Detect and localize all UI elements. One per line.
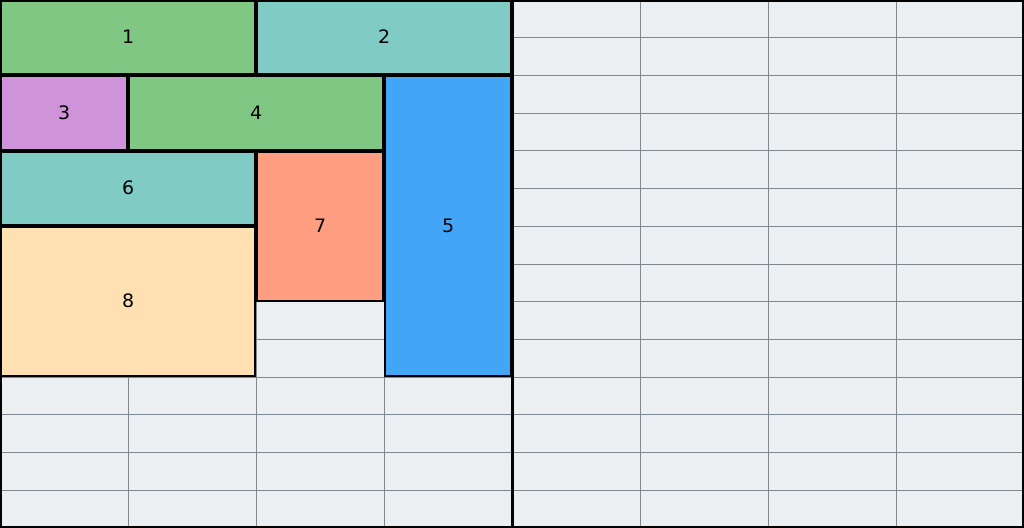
grid-cell-r12-c1: [128, 453, 256, 491]
grid-cell-r10-c3: [384, 377, 512, 415]
grid-cell-r5-c5: [640, 189, 768, 227]
packing-board: 12345678: [0, 0, 1024, 528]
grid-cell-r3-c5: [640, 113, 768, 151]
grid-cell-r3-c4: [512, 113, 640, 151]
block-8[interactable]: 8: [0, 226, 256, 377]
block-label: 5: [442, 217, 454, 236]
grid-cell-r2-c7: [896, 75, 1024, 113]
grid-cell-r8-c2: [256, 302, 384, 340]
grid-cell-r4-c4: [512, 151, 640, 189]
grid-cell-r2-c4: [512, 75, 640, 113]
grid-cell-r11-c5: [640, 415, 768, 453]
block-3[interactable]: 3: [0, 75, 128, 150]
block-label: 6: [122, 179, 134, 198]
grid-cell-r3-c6: [768, 113, 896, 151]
grid-cell-r0-c6: [768, 0, 896, 38]
grid-cell-r12-c0: [0, 453, 128, 491]
grid-cell-r10-c5: [640, 377, 768, 415]
block-label: 3: [58, 104, 70, 123]
grid-cell-r12-c3: [384, 453, 512, 491]
grid-cell-r13-c0: [0, 490, 128, 528]
block-7[interactable]: 7: [256, 151, 384, 302]
grid-cell-r10-c1: [128, 377, 256, 415]
block-6[interactable]: 6: [0, 151, 256, 226]
center-divider-line: [511, 0, 514, 528]
grid-cell-r10-c0: [0, 377, 128, 415]
grid-cell-r6-c5: [640, 226, 768, 264]
grid-cell-r12-c4: [512, 453, 640, 491]
grid-cell-r13-c4: [512, 490, 640, 528]
block-5[interactable]: 5: [384, 75, 512, 377]
grid-cell-r0-c7: [896, 0, 1024, 38]
grid-cell-r10-c6: [768, 377, 896, 415]
grid-cell-r11-c3: [384, 415, 512, 453]
grid-cell-r4-c5: [640, 151, 768, 189]
grid-cell-r9-c5: [640, 339, 768, 377]
grid-cell-r11-c0: [0, 415, 128, 453]
block-label: 4: [250, 104, 262, 123]
grid-cell-r11-c2: [256, 415, 384, 453]
grid-cell-r13-c1: [128, 490, 256, 528]
block-2[interactable]: 2: [256, 0, 512, 75]
block-label: 1: [122, 28, 134, 47]
grid-cell-r5-c6: [768, 189, 896, 227]
grid-cell-r11-c4: [512, 415, 640, 453]
block-label: 7: [314, 217, 326, 236]
grid-cell-r2-c6: [768, 75, 896, 113]
grid-cell-r13-c2: [256, 490, 384, 528]
grid-cell-r12-c7: [896, 453, 1024, 491]
grid-cell-r13-c6: [768, 490, 896, 528]
grid-cell-r4-c6: [768, 151, 896, 189]
grid-cell-r11-c6: [768, 415, 896, 453]
grid-cell-r12-c5: [640, 453, 768, 491]
grid-cell-r10-c4: [512, 377, 640, 415]
grid-cell-r2-c5: [640, 75, 768, 113]
grid-cell-r13-c3: [384, 490, 512, 528]
grid-cell-r8-c5: [640, 302, 768, 340]
grid-cell-r11-c1: [128, 415, 256, 453]
grid-cell-r0-c4: [512, 0, 640, 38]
grid-cell-r13-c7: [896, 490, 1024, 528]
grid-cell-r11-c7: [896, 415, 1024, 453]
grid-cell-r9-c6: [768, 339, 896, 377]
grid-cell-r9-c7: [896, 339, 1024, 377]
grid-cell-r1-c4: [512, 38, 640, 76]
grid-cell-r7-c7: [896, 264, 1024, 302]
grid-cell-r8-c6: [768, 302, 896, 340]
block-4[interactable]: 4: [128, 75, 384, 150]
grid-cell-r1-c6: [768, 38, 896, 76]
grid-cell-r1-c7: [896, 38, 1024, 76]
grid-cell-r7-c4: [512, 264, 640, 302]
grid-cell-r9-c2: [256, 339, 384, 377]
block-label: 8: [122, 292, 134, 311]
grid-cell-r6-c6: [768, 226, 896, 264]
block-label: 2: [378, 28, 390, 47]
block-1[interactable]: 1: [0, 0, 256, 75]
grid-cell-r1-c5: [640, 38, 768, 76]
grid-cell-r5-c4: [512, 189, 640, 227]
grid-cell-r5-c7: [896, 189, 1024, 227]
grid-cell-r13-c5: [640, 490, 768, 528]
grid-cell-r8-c7: [896, 302, 1024, 340]
grid-cell-r4-c7: [896, 151, 1024, 189]
grid-cell-r6-c7: [896, 226, 1024, 264]
grid-cell-r10-c7: [896, 377, 1024, 415]
grid-cell-r10-c2: [256, 377, 384, 415]
grid-cell-r9-c4: [512, 339, 640, 377]
grid-cell-r7-c5: [640, 264, 768, 302]
grid-cell-r12-c2: [256, 453, 384, 491]
grid-cell-r12-c6: [768, 453, 896, 491]
grid-cell-r6-c4: [512, 226, 640, 264]
grid-cell-r7-c6: [768, 264, 896, 302]
grid-cell-r8-c4: [512, 302, 640, 340]
grid-cell-r0-c5: [640, 0, 768, 38]
grid-cell-r3-c7: [896, 113, 1024, 151]
